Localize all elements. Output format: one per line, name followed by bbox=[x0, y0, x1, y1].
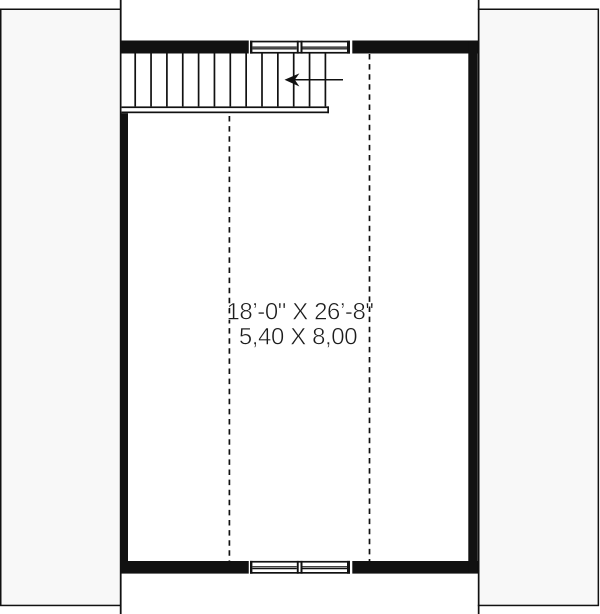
svg-text:18’-0" X 26’-8": 18’-0" X 26’-8" bbox=[226, 299, 373, 326]
svg-text:5,40 X 8,00: 5,40 X 8,00 bbox=[239, 324, 357, 351]
